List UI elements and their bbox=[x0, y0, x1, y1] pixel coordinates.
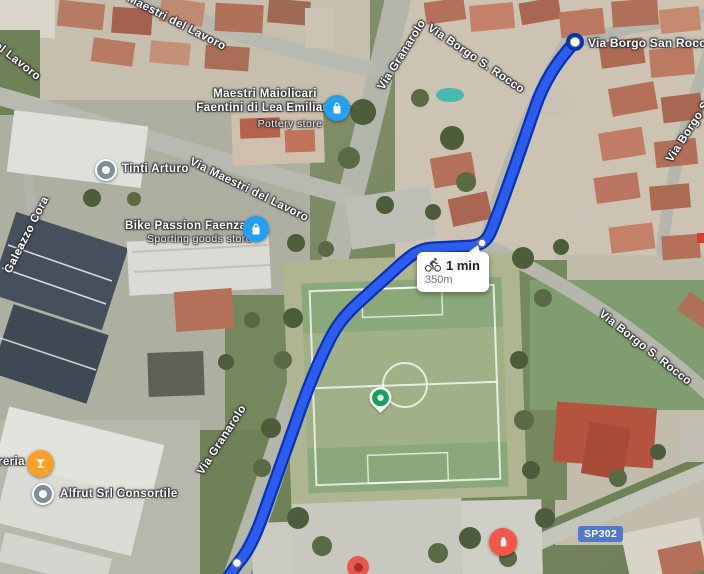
soccer-field bbox=[283, 253, 527, 504]
shopping-bag-icon[interactable] bbox=[243, 216, 269, 242]
route-distance: 350m bbox=[425, 274, 480, 286]
satellite-imagery bbox=[0, 0, 704, 574]
sports-field-pin-glyph bbox=[368, 386, 393, 415]
map-canvas[interactable]: Maestri del Lavoro del Lavoro Via Granar… bbox=[0, 0, 704, 574]
red-poi-glyph bbox=[497, 535, 510, 549]
waypoint-dot[interactable] bbox=[233, 559, 242, 568]
route-start-dot-inner bbox=[570, 37, 580, 47]
cocktail-glyph bbox=[34, 457, 47, 470]
route-info-tooltip[interactable]: 1 min 350m bbox=[417, 252, 489, 292]
shopping-bag-glyph bbox=[249, 222, 263, 237]
generic-poi-icon-alfrut[interactable] bbox=[32, 483, 54, 505]
shopping-bag-glyph bbox=[330, 101, 344, 116]
tooltip-duration-row: 1 min bbox=[425, 257, 480, 273]
route-duration: 1 min bbox=[446, 258, 480, 273]
bicycle-icon bbox=[425, 257, 441, 273]
shopping-bag-icon[interactable] bbox=[324, 95, 350, 121]
red-poi-icon[interactable] bbox=[489, 528, 517, 556]
generic-poi-icon-tinti[interactable] bbox=[95, 159, 117, 181]
road-badge-sp302: SP302 bbox=[578, 526, 623, 542]
cocktail-icon[interactable] bbox=[27, 450, 54, 477]
sports-field-pin-icon[interactable] bbox=[368, 386, 393, 420]
red-dot-poi-icon[interactable] bbox=[347, 556, 369, 574]
